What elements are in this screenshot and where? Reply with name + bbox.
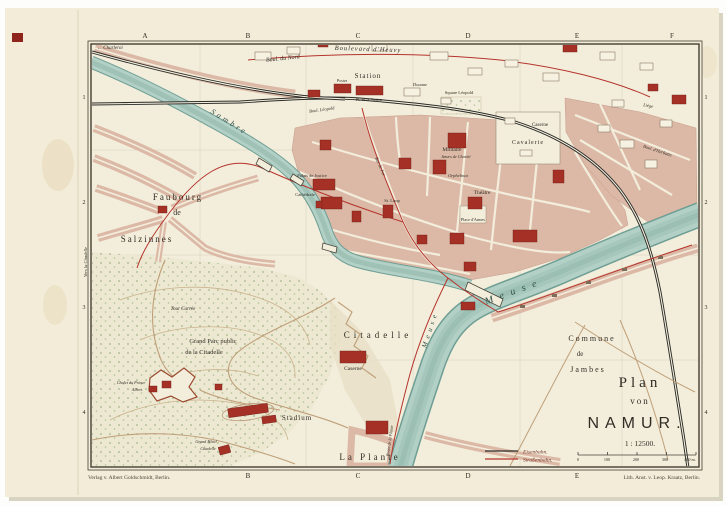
scale-tick-300: 300 — [662, 457, 668, 462]
label-chalet-1: Chalet du Prince — [117, 380, 146, 385]
label-vers-citadelle: Vers la Citadelle — [83, 247, 88, 277]
scale-tick-0: 0 — [577, 457, 579, 462]
label-theatre: Théâtre — [474, 190, 491, 196]
imprint-publisher: Verlag v. Albert Goldschmidt, Berlin. — [88, 475, 171, 481]
scale-tick-400: 400 m. — [684, 457, 696, 462]
label-commune-de: de — [577, 350, 584, 358]
foxing-stain — [42, 139, 74, 191]
legend-tram-label: Straßenbahn. — [523, 457, 553, 464]
label-faubourg-de: de — [173, 208, 181, 217]
label-chalet-2: Albert — [131, 387, 143, 392]
label-postes: Postes — [336, 78, 348, 83]
grid-letter: B — [246, 32, 251, 40]
label-cathedrale: Cathédrale — [295, 192, 315, 197]
label-commune: Commune — [568, 334, 615, 343]
title-von: von — [630, 396, 650, 406]
grid-letter: D — [465, 472, 470, 480]
label-jambes: Jambes — [570, 365, 606, 374]
grid-letter: E — [575, 472, 579, 480]
building-theatre — [468, 197, 482, 209]
building-hopital-militaire — [448, 133, 466, 148]
grid-number: 2 — [83, 200, 86, 206]
label-citadelle: Citadelle — [344, 330, 413, 340]
building-palais-de-justice — [313, 179, 335, 190]
label-grand-parc-2: de la Citadelle — [185, 349, 223, 356]
label-palais-justice: Palais de Justice — [297, 173, 327, 178]
grid-letter: F — [670, 32, 674, 40]
building-post — [334, 84, 351, 93]
grid-letter: B — [246, 472, 251, 480]
grid-letter: C — [356, 32, 361, 40]
title-scale: 1 : 12500. — [625, 439, 655, 448]
label-militaire: Militaire — [442, 147, 462, 153]
label-faubourg: Faubourg — [153, 192, 203, 202]
building-chalet — [149, 386, 157, 392]
grid-number: 4 — [705, 410, 708, 416]
scale-tick-200: 200 — [633, 457, 639, 462]
label-grand-parc-1: Grand Parc public — [189, 338, 236, 345]
label-soeurs-charite: Sœurs de Charité — [441, 154, 471, 159]
building-caserne-citadelle — [340, 351, 366, 363]
label-grand-hotel-1: Grand Hôtel — [195, 439, 217, 444]
grid-letter: D — [465, 32, 470, 40]
label-caserne-citadelle: Caserne — [344, 366, 362, 372]
grid-number: 3 — [705, 305, 708, 311]
label-grand-hotel-2: Citadelle — [200, 446, 215, 451]
label-salzinnes: Salzinnes — [121, 234, 174, 244]
scanned-map-page: ← Charleroi Boul. du Nord Boulevard d'He… — [0, 0, 726, 506]
grid-number: 2 — [705, 200, 708, 206]
label-orphelinat: Orphelinat — [448, 173, 468, 178]
label-cavalerie: Cavalerie — [512, 140, 544, 146]
label-douane: Douane — [412, 82, 427, 87]
grid-letter: E — [575, 32, 579, 40]
grid-letter: A — [142, 32, 147, 40]
foxing-stain — [43, 285, 67, 325]
label-place-armes: Place d'Armes — [461, 217, 485, 222]
imprint-lithographer: Lith. Anst. v. Leop. Kraatz, Berlin. — [624, 475, 701, 481]
label-stadium: Stadium — [282, 414, 312, 422]
label-caserne-ne: Caserne — [532, 123, 549, 128]
grid-number: 4 — [83, 410, 86, 416]
label-tour-carree: Tour Carrée — [171, 307, 196, 312]
grid-number: 3 — [83, 305, 86, 311]
grid-number: 1 — [83, 95, 86, 101]
label-place-station: Pl. de la Station — [356, 97, 383, 102]
label-charleroi: ← Charleroi — [97, 46, 123, 51]
grid-letter: C — [356, 472, 361, 480]
scale-tick-100: 100 — [604, 457, 610, 462]
grid-number: 1 — [705, 95, 708, 101]
legend-railway-label: Eisenbahn. — [522, 450, 548, 456]
building-cathedral — [321, 197, 342, 209]
label-st-loup: St. Loup — [384, 198, 400, 203]
building-station — [356, 86, 383, 95]
label-square-leopold: Square Léopold — [445, 90, 474, 95]
red-mark — [12, 33, 23, 42]
building-salzinnes-church — [158, 206, 167, 213]
label-station: Station — [355, 72, 382, 80]
building-st-loup — [383, 205, 393, 218]
building-casino — [366, 421, 388, 434]
label-la-plante: La Plante — [339, 452, 400, 462]
title-plan: Plan — [619, 375, 662, 391]
title-namur: NAMUR. — [587, 415, 686, 432]
